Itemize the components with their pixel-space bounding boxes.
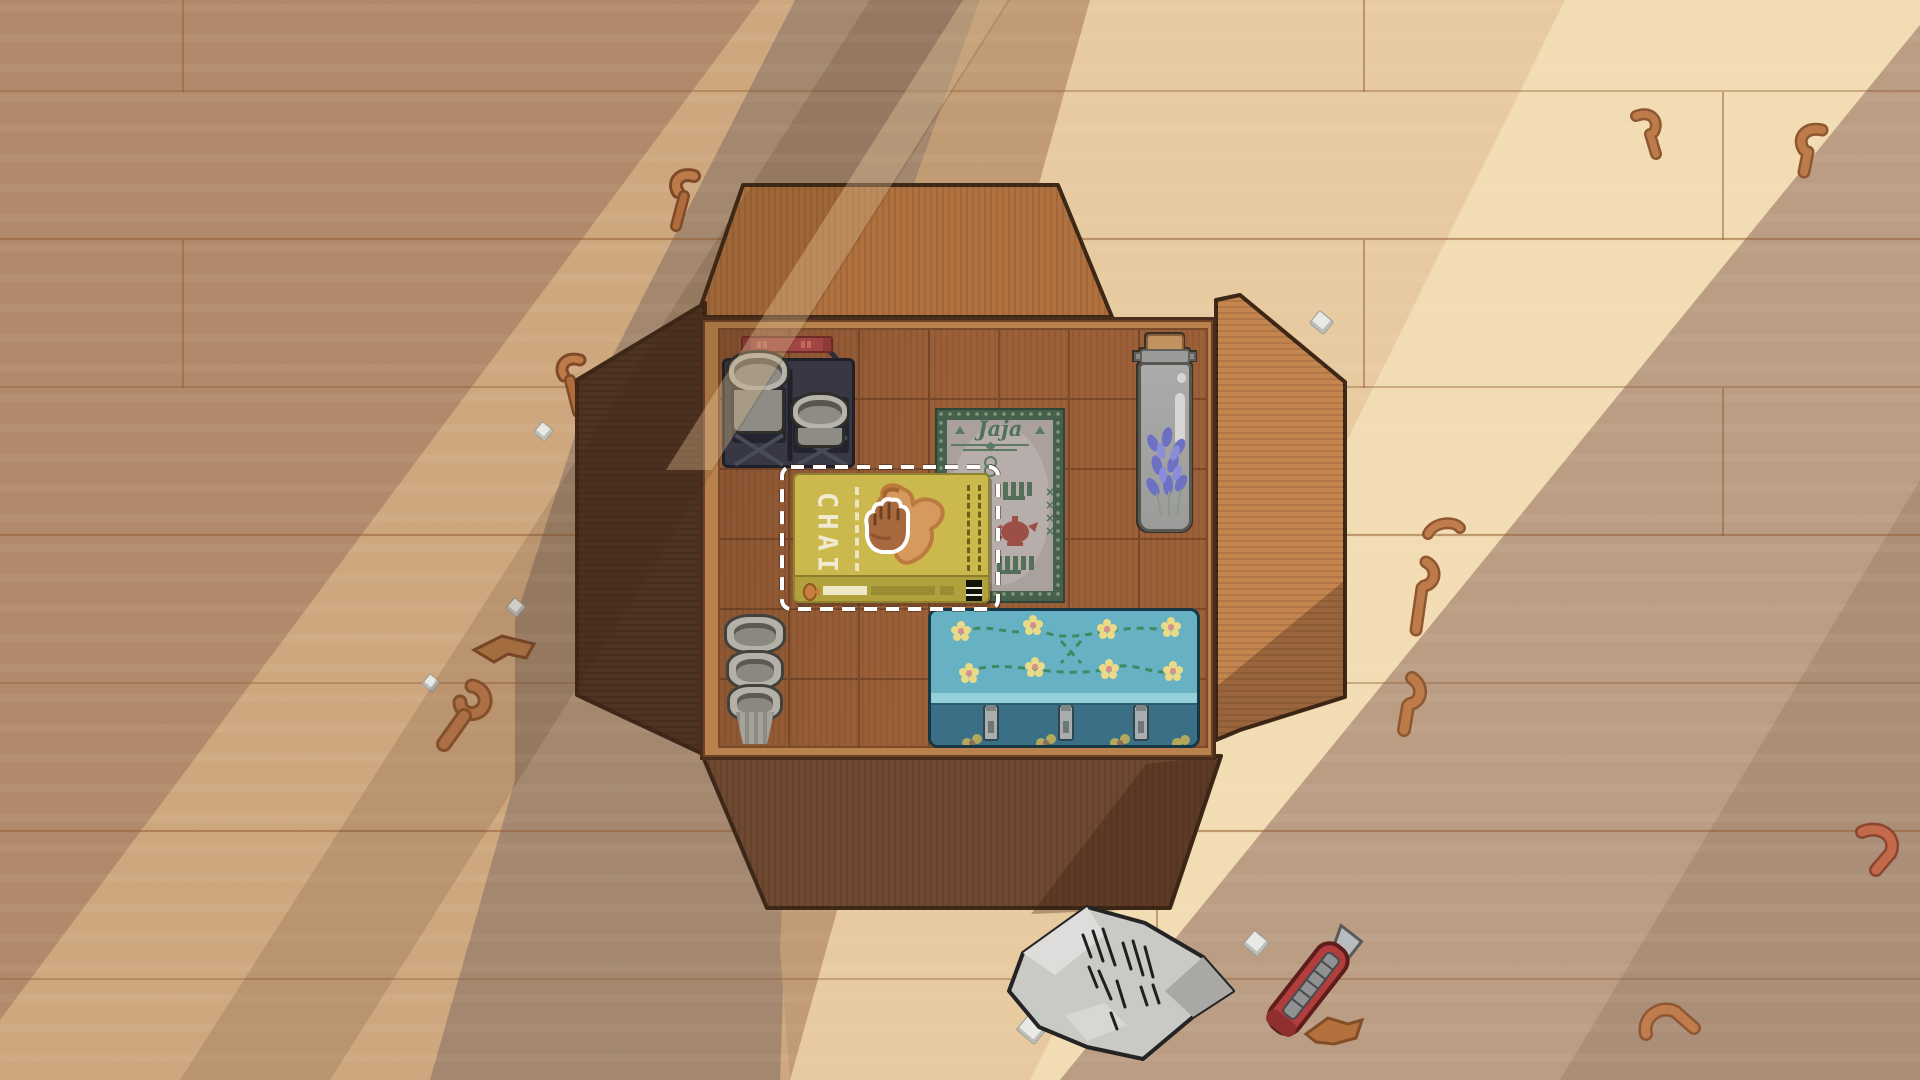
grey-pot [726, 350, 790, 436]
lavender-sprigs-icon [1143, 427, 1191, 527]
tin-clasp [1058, 705, 1074, 741]
unpacking-game-scene: Jaja ×××× [0, 0, 1920, 1080]
cup-fluted-base [736, 712, 774, 744]
hand-grab-cursor-icon [851, 494, 919, 564]
chai-box-bottom-strip [795, 575, 988, 603]
crumpled-packing-paper [995, 895, 1245, 1075]
cross-stitch-marks: ×××× [1045, 486, 1055, 538]
grey-pot [790, 392, 850, 450]
teapot-stitch-icon [995, 510, 1041, 550]
tin-clasp [1133, 705, 1149, 741]
tin-clasp [983, 705, 999, 741]
fish-icon [801, 581, 823, 603]
flower-pattern [931, 611, 1197, 695]
lavender-jar[interactable] [1132, 332, 1198, 536]
stacked-cups[interactable] [720, 608, 790, 746]
chai-tea-box-selected[interactable]: CHAI [779, 464, 1001, 612]
pot-caddy-basket[interactable] [720, 334, 856, 470]
box-cutter [1240, 905, 1390, 1055]
floral-tin[interactable] [928, 608, 1200, 748]
barcode [966, 580, 982, 602]
